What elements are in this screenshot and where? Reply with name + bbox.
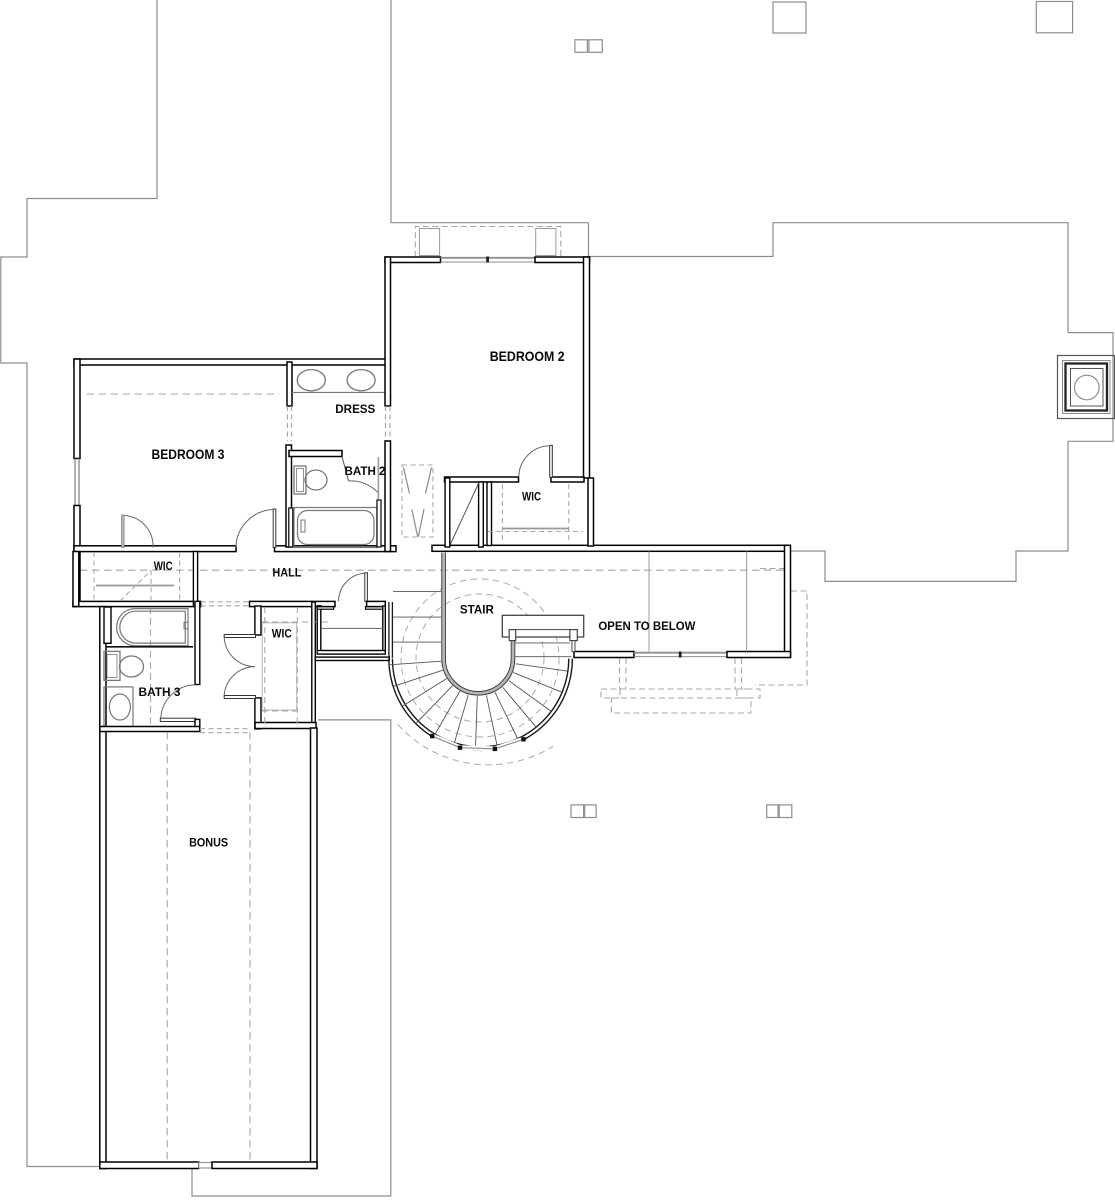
svg-text:BATH 3: BATH 3 [139, 685, 181, 699]
svg-text:OPEN TO BELOW: OPEN TO BELOW [598, 619, 696, 633]
svg-text:BEDROOM 3: BEDROOM 3 [152, 446, 225, 462]
svg-text:BONUS: BONUS [189, 836, 228, 850]
svg-text:WIC: WIC [154, 559, 173, 573]
svg-text:HALL: HALL [272, 566, 301, 580]
svg-text:BATH 2: BATH 2 [345, 464, 386, 478]
svg-text:WIC: WIC [272, 627, 292, 641]
svg-text:DRESS: DRESS [335, 402, 375, 416]
svg-text:WIC: WIC [522, 490, 541, 504]
svg-text:BEDROOM 2: BEDROOM 2 [490, 348, 565, 364]
svg-text:STAIR: STAIR [460, 603, 494, 617]
